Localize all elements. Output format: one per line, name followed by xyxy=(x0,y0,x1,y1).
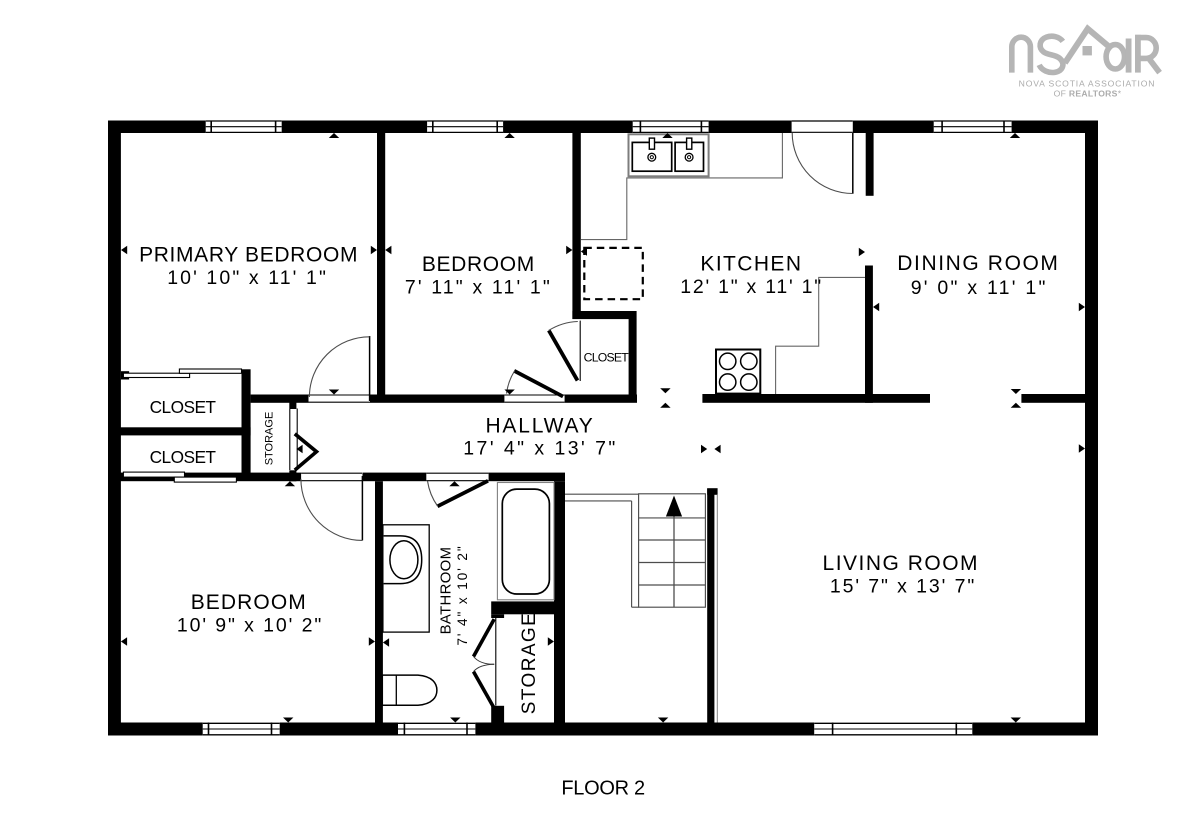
svg-text:BATHROOM: BATHROOM xyxy=(439,547,455,635)
svg-text:CLOSET: CLOSET xyxy=(584,351,630,365)
svg-text:7' 4" x 10' 2": 7' 4" x 10' 2" xyxy=(455,544,470,645)
svg-text:BEDROOM: BEDROOM xyxy=(191,591,307,614)
svg-text:12' 1" x 11' 1": 12' 1" x 11' 1" xyxy=(680,276,823,298)
svg-text:CLOSET: CLOSET xyxy=(150,397,217,417)
svg-text:PRIMARY BEDROOM: PRIMARY BEDROOM xyxy=(139,244,358,267)
svg-text:STORAGE: STORAGE xyxy=(264,412,276,466)
svg-text:STORAGE: STORAGE xyxy=(519,612,540,714)
svg-text:10' 9" x 10' 2": 10' 9" x 10' 2" xyxy=(177,614,323,636)
svg-text:FLOOR 2: FLOOR 2 xyxy=(561,778,645,800)
svg-text:17' 4" x 13' 7": 17' 4" x 13' 7" xyxy=(463,438,618,460)
svg-text:10' 10" x 11' 1": 10' 10" x 11' 1" xyxy=(167,267,328,289)
svg-text:DINING ROOM: DINING ROOM xyxy=(897,252,1059,275)
svg-text:OF REALTORS*: OF REALTORS* xyxy=(1054,88,1122,98)
svg-text:CLOSET: CLOSET xyxy=(150,447,217,467)
svg-text:7' 11" x 11' 1": 7' 11" x 11' 1" xyxy=(405,277,552,299)
svg-text:BEDROOM: BEDROOM xyxy=(422,253,535,276)
svg-text:HALLWAY: HALLWAY xyxy=(485,414,594,437)
svg-text:NOVA SCOTIA ASSOCIATION: NOVA SCOTIA ASSOCIATION xyxy=(1019,79,1156,89)
svg-text:KITCHEN: KITCHEN xyxy=(700,253,802,276)
svg-text:LIVING ROOM: LIVING ROOM xyxy=(823,552,980,575)
svg-text:9' 0" x 11' 1": 9' 0" x 11' 1" xyxy=(911,277,1048,299)
svg-text:15' 7" x 13' 7": 15' 7" x 13' 7" xyxy=(830,575,976,597)
